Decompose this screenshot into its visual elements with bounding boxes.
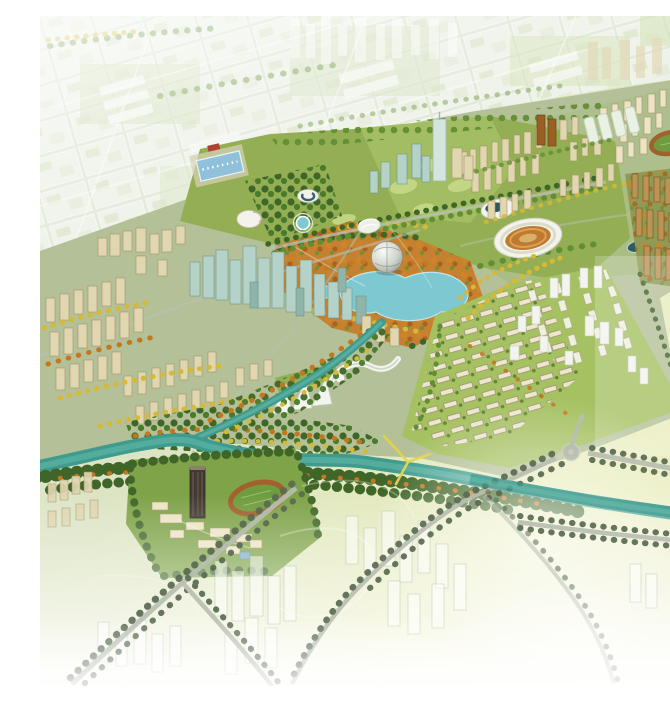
ring-pool [294,214,313,233]
courtyard-disc-building [298,190,319,203]
masterplan-canvas [40,16,670,686]
orange-tower-2 [548,119,556,146]
landmark-glass-tower [433,119,446,181]
aerial-city-rendering [40,16,670,686]
orange-tower-1 [537,115,545,145]
